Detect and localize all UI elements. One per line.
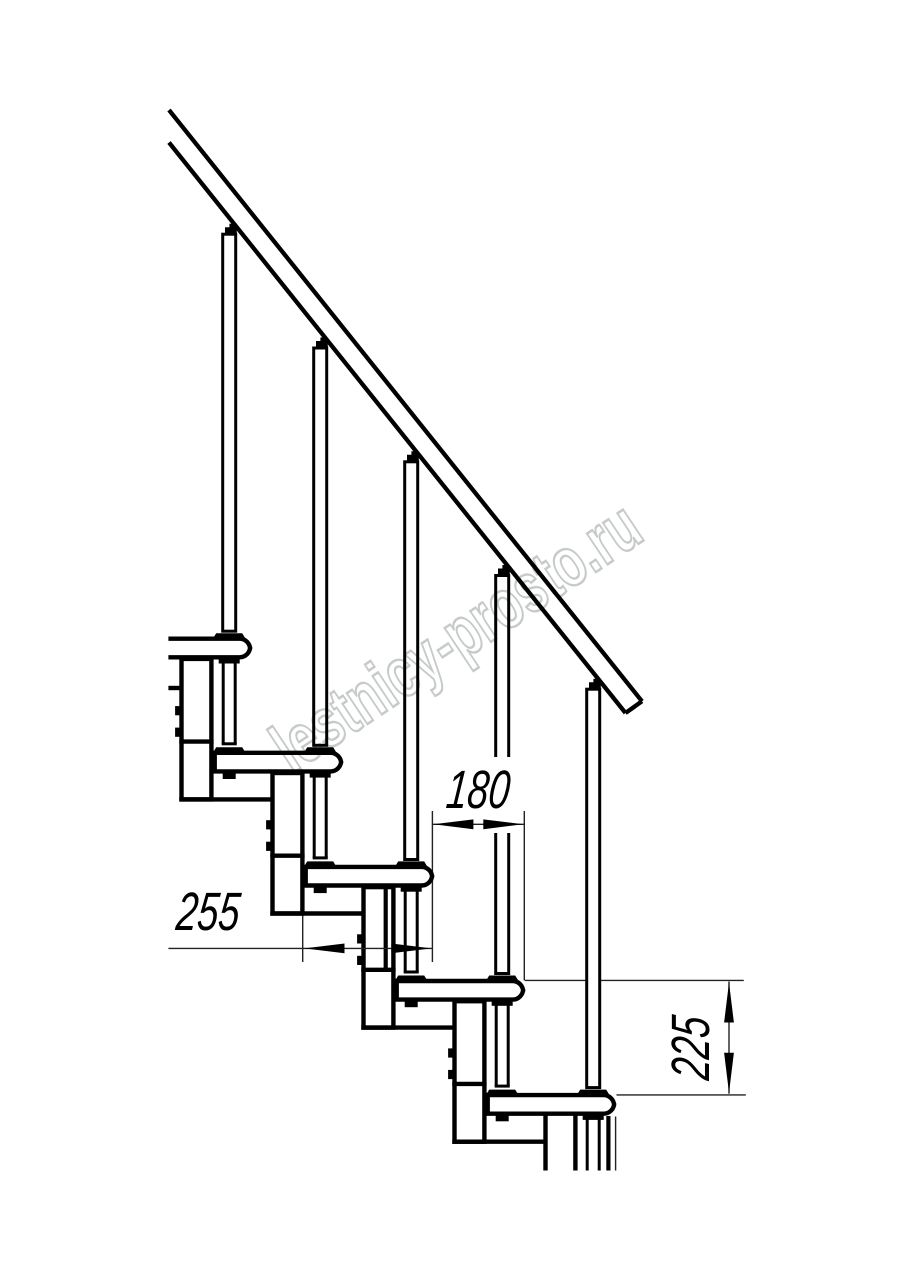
svg-text:225: 225 bbox=[661, 1012, 721, 1083]
svg-text:180: 180 bbox=[444, 760, 513, 820]
svg-text:255: 255 bbox=[173, 882, 244, 942]
